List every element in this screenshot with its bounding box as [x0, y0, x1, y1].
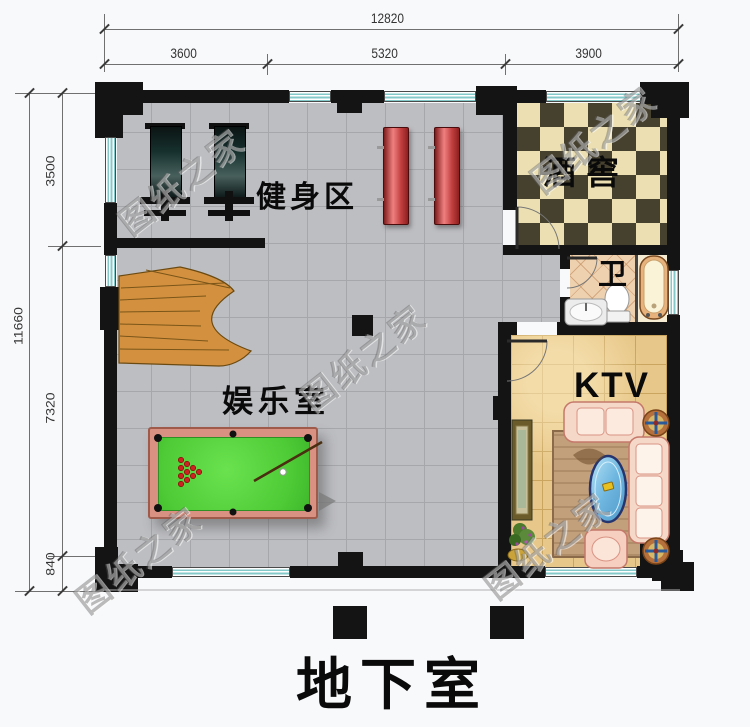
dim-tick	[48, 246, 101, 247]
dim-segment-width: 3900	[575, 45, 601, 61]
cellar-bottom-wall	[503, 245, 680, 255]
ktv-top-wall	[498, 322, 517, 335]
dim-segment-height: 3500	[43, 141, 57, 201]
tub-divider-wall	[635, 255, 638, 322]
gym-equipment-red	[434, 127, 460, 225]
column	[95, 82, 123, 138]
porch-column	[490, 606, 524, 639]
dim-line-total-top	[104, 29, 678, 30]
window	[668, 270, 679, 315]
column	[337, 90, 362, 113]
treadmill-console-bar	[204, 197, 254, 204]
porch-column	[333, 606, 367, 639]
window	[172, 567, 290, 577]
bathroom-left-wall	[560, 297, 570, 322]
ktv-left-wall	[498, 335, 511, 567]
window	[105, 137, 116, 203]
cellar-left-wall	[503, 103, 517, 210]
dim-line-segments-top	[104, 64, 678, 65]
dim-total-height: 11660	[11, 296, 25, 356]
gym-label: 健身区	[256, 172, 358, 216]
basement-floor-plan: 12820 3600 5320 3900 11660 3500 7320 840	[0, 0, 750, 727]
window	[384, 91, 476, 102]
bathroom-left-wall	[560, 255, 570, 269]
column	[100, 287, 125, 330]
column	[661, 562, 694, 591]
window	[289, 91, 331, 102]
bathroom-label: 卫	[598, 251, 627, 293]
gym-partition-wall	[104, 238, 265, 248]
window	[105, 255, 116, 287]
column	[493, 396, 510, 420]
treadmill-console-bar	[208, 210, 250, 216]
floor-title: 地下室	[252, 640, 532, 721]
corridor-floor	[503, 255, 560, 322]
equipment-mark	[377, 198, 384, 201]
ktv-label: KTV	[574, 366, 650, 406]
dim-segment-height: 840	[43, 534, 57, 594]
ktv-top-wall	[557, 322, 680, 335]
equipment-mark	[428, 198, 435, 201]
equipment-mark	[377, 146, 384, 149]
dim-total-width: 12820	[371, 10, 404, 26]
column	[338, 552, 363, 568]
gym-equipment-red	[383, 127, 409, 225]
dim-segment-width: 5320	[371, 45, 397, 61]
bathtub-alcove-floor	[637, 255, 667, 322]
dim-segment-height: 7320	[43, 378, 57, 438]
dim-line-segments-left	[62, 93, 63, 591]
column	[476, 86, 517, 115]
equipment-mark	[428, 146, 435, 149]
dim-segment-width: 3600	[170, 45, 196, 61]
window	[545, 567, 637, 577]
dim-line-total-left	[29, 93, 30, 591]
treadmill-post	[225, 191, 233, 221]
